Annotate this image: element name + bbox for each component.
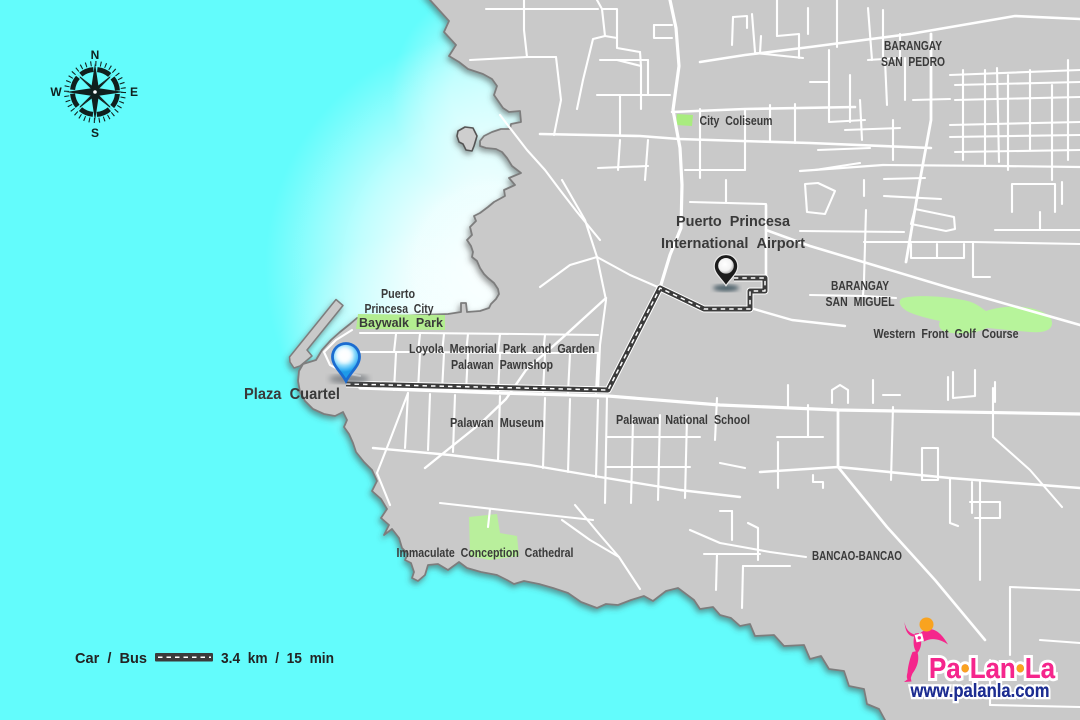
svg-text:SAN PEDRO: SAN PEDRO — [881, 55, 945, 69]
svg-text:Princesa City: Princesa City — [365, 302, 434, 316]
svg-text:E: E — [130, 85, 138, 99]
svg-text:BARANGAY: BARANGAY — [884, 39, 943, 53]
svg-text:BARANGAY: BARANGAY — [831, 279, 890, 293]
svg-text:Puerto Princesa: Puerto Princesa — [676, 213, 791, 230]
svg-text:Baywalk Park: Baywalk Park — [359, 316, 443, 330]
svg-text:Western Front Golf Course: Western Front Golf Course — [874, 327, 1019, 341]
svg-text:City Coliseum: City Coliseum — [700, 114, 773, 128]
svg-text:Palawan Pawnshop: Palawan Pawnshop — [451, 358, 553, 372]
svg-text:BANCAO-BANCAO: BANCAO-BANCAO — [812, 549, 902, 563]
svg-text:Puerto: Puerto — [381, 287, 415, 301]
svg-text:Loyola Memorial Park and G: Loyola Memorial Park and Garden — [409, 342, 595, 356]
svg-text:Palawan National School: Palawan National School — [616, 413, 750, 427]
svg-text:Car / Bus: Car / Bus — [75, 650, 147, 667]
svg-text:Immaculate Conception Cathed: Immaculate Conception Cathedral — [397, 546, 574, 560]
svg-text:SAN MIGUEL: SAN MIGUEL — [826, 295, 895, 309]
svg-text:N: N — [91, 48, 100, 62]
svg-text:International Airport: International Airport — [661, 235, 805, 252]
svg-text:W: W — [50, 85, 62, 99]
svg-text:Palawan Museum: Palawan Museum — [450, 416, 544, 430]
svg-text:S: S — [91, 126, 99, 140]
svg-text:Plaza Cuartel: Plaza Cuartel — [244, 386, 340, 403]
svg-text:3.4 km / 15 min: 3.4 km / 15 min — [221, 650, 334, 667]
svg-text:www.palanla.com: www.palanla.com — [910, 681, 1050, 702]
